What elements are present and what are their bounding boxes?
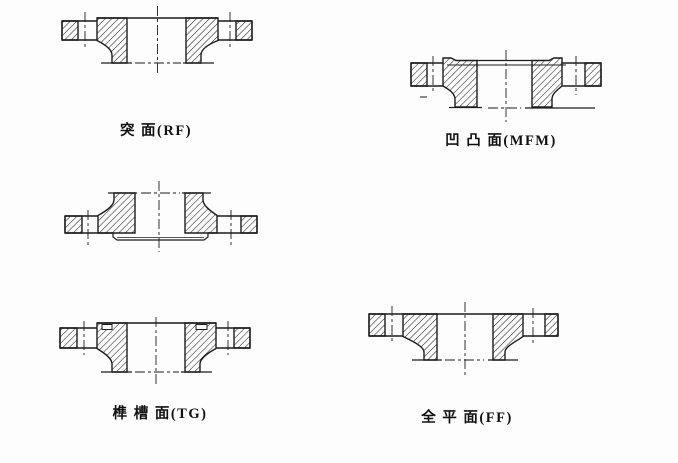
rf-flange-drawing (55, 4, 265, 82)
mfm-flange-drawing (405, 48, 610, 124)
tg-flange-drawing (55, 315, 260, 393)
outline (369, 314, 558, 360)
caption-rf: 突 面(RF) (120, 119, 192, 140)
ff-flange-drawing (364, 300, 564, 378)
caption-tg: 榫 槽 面(TG) (113, 402, 208, 423)
caption-mfm: 凹 凸 面(MFM) (445, 129, 557, 150)
hatched-sections (65, 193, 257, 233)
hatched-sections (369, 314, 558, 360)
outline (65, 193, 257, 240)
outline (60, 323, 250, 372)
flange-face-types-figure: 突 面(RF) 凹 凸 面 (0, 0, 678, 463)
outline (62, 18, 252, 63)
caption-ff: 全 平 面(FF) (421, 406, 513, 427)
tongue-flange-drawing (60, 178, 262, 254)
